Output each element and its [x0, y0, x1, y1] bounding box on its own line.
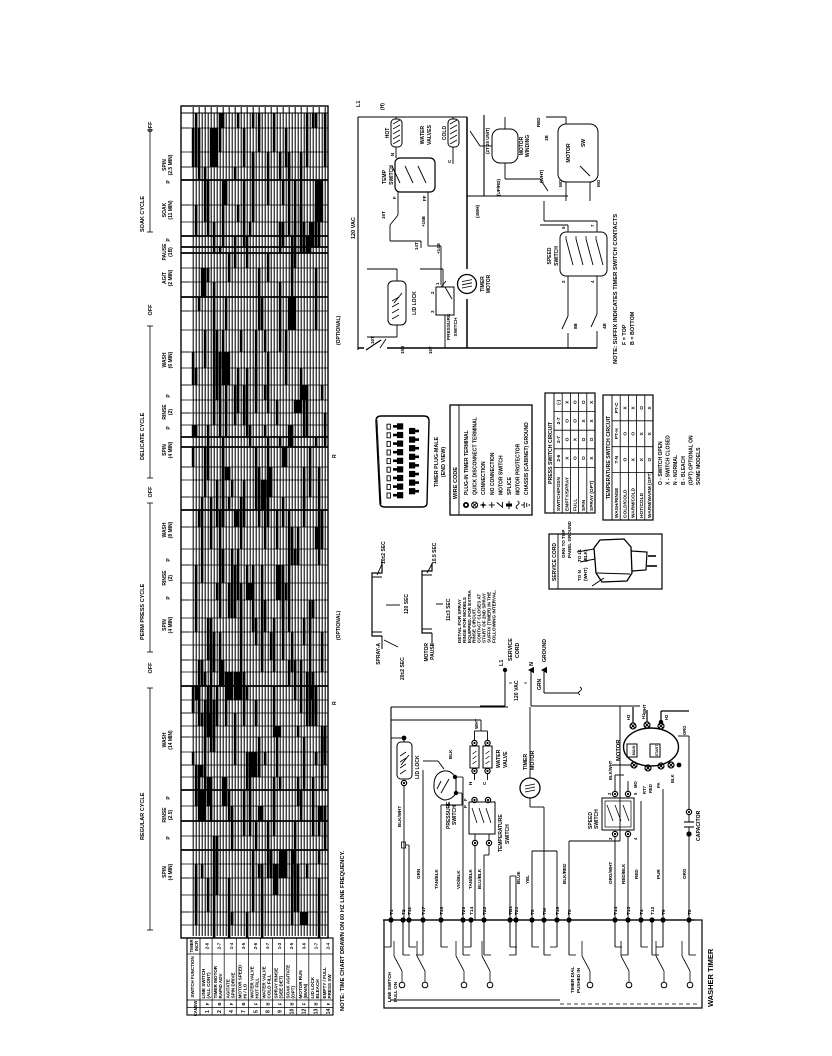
- svg-text:TO N: TO N: [577, 569, 582, 581]
- svg-text:CONNECTION: CONNECTION: [481, 461, 487, 495]
- svg-text:SOAK CYCLE: SOAK CYCLE: [140, 196, 146, 232]
- svg-text:FF: FF: [422, 195, 427, 201]
- svg-text:T9: T9: [661, 909, 667, 915]
- svg-text:NO CONNECTION: NO CONNECTION: [490, 452, 496, 495]
- svg-text:(UP/RD): (UP/RD): [496, 179, 501, 196]
- svg-text:B - BLEACH: B - BLEACH: [681, 456, 687, 485]
- svg-text:PLUG-IN TIMER TERMINAL: PLUG-IN TIMER TERMINAL: [464, 430, 470, 495]
- svg-text:VALVES: VALVES: [427, 124, 433, 145]
- svg-text:BLK/WHT: BLK/WHT: [608, 760, 613, 780]
- svg-text:YEL: YEL: [525, 875, 530, 884]
- svg-text:120 VAC: 120 VAC: [351, 217, 357, 239]
- svg-text:8: 8: [265, 1010, 271, 1013]
- svg-text:MOTOR SWITCH: MOTOR SWITCH: [498, 455, 504, 495]
- svg-text:BLU/BLK: BLU/BLK: [477, 868, 482, 889]
- svg-text:T12: T12: [650, 906, 656, 915]
- svg-text:B = BOTTOM: B = BOTTOM: [630, 311, 636, 345]
- svg-text:1B: 1B: [544, 134, 549, 141]
- svg-text:9: 9: [277, 1010, 283, 1013]
- svg-text:SOME MODELS: SOME MODELS: [696, 447, 702, 485]
- svg-text:GROUND: GROUND: [542, 639, 548, 662]
- svg-text:RED: RED: [536, 117, 541, 127]
- svg-text:MAIN: MAIN: [632, 745, 636, 755]
- svg-text:COLD/COLD: COLD/COLD: [622, 489, 628, 518]
- svg-text:RT7: RT7: [642, 785, 647, 794]
- svg-text:(2.5 MIN): (2.5 MIN): [168, 154, 174, 175]
- svg-text:120 SEC: 120 SEC: [404, 594, 410, 614]
- svg-text:MOTOR: MOTOR: [530, 751, 536, 770]
- svg-text:N - NORMAL: N - NORMAL: [673, 455, 679, 485]
- svg-text:NOTE: SUFFIX INDICATES TIMER S: NOTE: SUFFIX INDICATES TIMER SWITCH CONT…: [613, 214, 619, 364]
- svg-text:INCR: INCR: [194, 941, 199, 951]
- svg-text:SW: SW: [193, 1001, 198, 1008]
- svg-text:SPIN DRIVE: SPIN DRIVE: [230, 972, 235, 998]
- svg-text:WARM/WARM (OPT): WARM/WARM (OPT): [647, 472, 653, 518]
- svg-text:F: F: [277, 1002, 282, 1005]
- svg-text:T18: T18: [555, 906, 561, 915]
- svg-text:1: 1: [205, 1010, 211, 1013]
- svg-text:PA: PA: [656, 782, 661, 788]
- svg-text:2-6: 2-6: [556, 454, 562, 461]
- svg-text:4-7: 4-7: [265, 942, 270, 949]
- svg-text:7: 7: [241, 1010, 247, 1013]
- svg-text:COLD FILL: COLD FILL: [267, 974, 272, 998]
- svg-text:O: O: [564, 419, 570, 423]
- svg-text:ORG: ORG: [682, 868, 687, 879]
- svg-text:HOT/COLD: HOT/COLD: [639, 492, 645, 518]
- svg-text:O: O: [564, 437, 570, 441]
- svg-text:X - SWITCH CLOSED: X - SWITCH CLOSED: [666, 435, 672, 485]
- svg-text:(OPT): (OPT): [291, 986, 296, 999]
- svg-text:T4: T4: [639, 909, 645, 915]
- svg-text:12: 12: [302, 1009, 308, 1015]
- svg-text:(2.5): (2.5): [168, 810, 174, 821]
- svg-text:T17: T17: [421, 906, 427, 915]
- svg-text:14T: 14T: [414, 242, 419, 250]
- svg-text:F: F: [253, 1002, 258, 1005]
- svg-text:OFF: OFF: [148, 121, 154, 133]
- svg-text:2-6: 2-6: [205, 942, 210, 949]
- svg-text:B: B: [265, 1002, 270, 1005]
- svg-text:SPEED: SPEED: [547, 247, 553, 264]
- svg-text:BLK/RED: BLK/RED: [562, 863, 567, 884]
- svg-text:TIMER: TIMER: [523, 754, 529, 770]
- svg-text:(-): (-): [556, 400, 562, 405]
- svg-text:PRESS SWITCH CIRCUIT: PRESS SWITCH CIRCUIT: [548, 421, 554, 484]
- svg-text:PERM PRESS CYCLE: PERM PRESS CYCLE: [140, 583, 146, 640]
- svg-text:RED: RED: [648, 784, 653, 793]
- svg-text:PAUSE: PAUSE: [430, 642, 436, 660]
- svg-text:TIMER DIAL: TIMER DIAL: [570, 967, 575, 993]
- svg-text:SPLICE: SPLICE: [507, 476, 513, 495]
- svg-text:(4 MIN): (4 MIN): [168, 863, 174, 880]
- svg-text:15B: 15B: [400, 345, 405, 354]
- svg-text:(4 MIN): (4 MIN): [168, 616, 174, 633]
- svg-text:H3: H3: [626, 714, 631, 720]
- svg-text:SWITCH: SWITCH: [389, 165, 395, 185]
- svg-text:WASH/RINSE: WASH/RINSE: [614, 487, 620, 518]
- svg-text:16T: 16T: [370, 336, 375, 344]
- svg-text:RAPID ADV: RAPID ADV: [218, 972, 223, 998]
- svg-text:N: N: [529, 662, 535, 666]
- svg-text:10: 10: [290, 1009, 296, 1015]
- svg-text:F: F: [463, 798, 468, 801]
- svg-text:ORG: ORG: [682, 725, 687, 735]
- svg-text:EMPTY/SPRAY: EMPTY/SPRAY: [564, 476, 570, 511]
- svg-text:B: B: [217, 1002, 222, 1005]
- svg-text:O: O: [573, 456, 579, 460]
- svg-text:2-7: 2-7: [556, 417, 562, 424]
- svg-text:PANEL GROUND: PANEL GROUND: [567, 520, 572, 558]
- svg-text:O: O: [647, 457, 653, 461]
- svg-text:CORD: CORD: [515, 642, 521, 658]
- svg-text:O: O: [573, 400, 579, 404]
- svg-text:SERVICE CORD: SERVICE CORD: [552, 543, 558, 581]
- svg-text:LID LOCK: LID LOCK: [412, 291, 418, 315]
- svg-text:13: 13: [314, 1009, 320, 1015]
- svg-text:SPIN: SPIN: [581, 499, 587, 511]
- svg-text:(2 MIN): (2 MIN): [168, 269, 174, 286]
- svg-text:2-6: 2-6: [253, 942, 258, 949]
- svg-text:SPRAY (OPT): SPRAY (OPT): [589, 480, 595, 511]
- svg-text:(2): (2): [168, 409, 174, 415]
- svg-text:O - SWITCH OPEN: O - SWITCH OPEN: [658, 441, 664, 485]
- svg-text:T-N: T-N: [614, 455, 620, 463]
- svg-text:(14 MIN): (14 MIN): [168, 730, 174, 750]
- svg-text:WATER: WATER: [420, 126, 426, 145]
- svg-text:T8: T8: [687, 909, 693, 915]
- svg-text:R: R: [332, 701, 338, 705]
- svg-text:(OPTIONAL): (OPTIONAL): [336, 316, 342, 345]
- svg-text:+14B: +14B: [436, 242, 441, 254]
- svg-text:O: O: [631, 432, 637, 436]
- svg-text:R: R: [332, 454, 338, 458]
- svg-text:1-4: 1-4: [229, 942, 234, 949]
- svg-text:T21: T21: [514, 906, 520, 915]
- svg-text:T22: T22: [482, 906, 488, 915]
- svg-text:BLUE: BLUE: [516, 871, 521, 884]
- svg-text:SWITCH: SWITCH: [453, 317, 459, 336]
- svg-text:SWITCH: SWITCH: [505, 824, 511, 844]
- svg-text:T20: T20: [461, 906, 467, 915]
- svg-text:SWITCH: SWITCH: [554, 246, 560, 266]
- svg-text:BLK: BLK: [448, 749, 453, 759]
- svg-text:HOT: HOT: [385, 128, 391, 139]
- svg-text:H: H: [468, 782, 473, 785]
- svg-text:RED/BLK: RED/BLK: [621, 863, 626, 884]
- svg-text:COLD: COLD: [442, 126, 448, 141]
- svg-text:120 VAC: 120 VAC: [514, 680, 520, 701]
- svg-text:8B: 8B: [573, 322, 578, 329]
- svg-text:MOTOR: MOTOR: [616, 739, 622, 761]
- svg-text:FOLLOWING INTERVAL.: FOLLOWING INTERVAL.: [491, 590, 496, 643]
- svg-text:WHT: WHT: [642, 704, 647, 714]
- svg-text:20±2 SEC: 20±2 SEC: [400, 657, 406, 680]
- svg-text:SERVICE: SERVICE: [508, 638, 514, 661]
- svg-text:16T: 16T: [381, 211, 386, 219]
- svg-text:(6 MIN): (6 MIN): [168, 351, 174, 368]
- svg-text:WHT: WHT: [474, 718, 479, 729]
- svg-text:MOTOR: MOTOR: [486, 274, 492, 293]
- svg-text:WASHER TIMER: WASHER TIMER: [706, 948, 715, 1007]
- svg-text:2-7: 2-7: [217, 942, 222, 949]
- svg-text:O: O: [581, 400, 587, 404]
- svg-text:T5: T5: [530, 909, 536, 915]
- svg-text:11±3 SEC: 11±3 SEC: [446, 598, 452, 621]
- svg-text:F: F: [229, 1002, 234, 1005]
- svg-text:3-6: 3-6: [301, 942, 306, 949]
- svg-text:F = TOP: F = TOP: [622, 324, 628, 345]
- svg-text:(OPTIONAL): (OPTIONAL): [336, 611, 342, 640]
- svg-text:MO: MO: [558, 179, 563, 187]
- svg-text:F: F: [302, 1002, 307, 1005]
- svg-text:PRESSURE: PRESSURE: [446, 313, 452, 340]
- svg-text:CAPACITOR: CAPACITOR: [696, 810, 702, 841]
- svg-text:10.5 SEC: 10.5 SEC: [432, 542, 438, 564]
- svg-text:T11: T11: [407, 907, 413, 915]
- svg-text:CHASSIS (CABINET) GROUND: CHASSIS (CABINET) GROUND: [524, 422, 530, 495]
- svg-text:(4 MIN): (4 MIN): [168, 441, 174, 458]
- svg-text:TEMP: TEMP: [382, 169, 388, 184]
- svg-text:GRN: GRN: [416, 868, 421, 879]
- svg-text:B: B: [290, 1002, 295, 1005]
- svg-text:HOT FILL: HOT FILL: [254, 978, 259, 999]
- svg-text:GRN: GRN: [537, 679, 543, 691]
- svg-text:T1: T1: [389, 909, 395, 915]
- svg-text:MO: MO: [633, 781, 638, 788]
- svg-text:B: B: [314, 1002, 319, 1005]
- svg-text:PT-H: PT-H: [614, 428, 620, 439]
- svg-text:DELICATE CYCLE: DELICATE CYCLE: [140, 412, 146, 460]
- svg-text:MOTOR: MOTOR: [566, 143, 572, 162]
- svg-text:(8 MIN): (8 MIN): [168, 521, 174, 538]
- svg-text:(4WH): (4WH): [475, 205, 480, 218]
- svg-text:(2T 25 UNIT): (2T 25 UNIT): [485, 127, 490, 154]
- svg-text:WINDING: WINDING: [525, 135, 531, 157]
- svg-text:O: O: [573, 419, 579, 423]
- svg-text:O: O: [581, 456, 587, 460]
- svg-text:T6: T6: [567, 909, 573, 915]
- svg-text:(1B): (1B): [168, 247, 174, 257]
- svg-text:L1: L1: [356, 101, 362, 107]
- svg-text:1-3: 1-3: [277, 942, 282, 949]
- svg-text:T13: T13: [626, 906, 632, 915]
- svg-text:2-7: 2-7: [556, 436, 562, 443]
- svg-text:SW: SW: [581, 139, 587, 147]
- svg-text:PUSHED IN: PUSHED IN: [576, 967, 581, 993]
- svg-text:(ALL CONT): (ALL CONT): [206, 972, 211, 999]
- svg-text:WARM/COLD: WARM/COLD: [631, 487, 637, 518]
- svg-text:MOTOR PROTECTOR: MOTOR PROTECTOR: [516, 443, 522, 495]
- svg-text:F: F: [205, 1002, 210, 1005]
- svg-text:TIMER PLUG-MALE: TIMER PLUG-MALE: [434, 436, 440, 487]
- svg-text:T16: T16: [439, 906, 445, 915]
- svg-text:OFF: OFF: [148, 304, 154, 316]
- svg-text:(OPT) OPTIONAL ON: (OPT) OPTIONAL ON: [688, 435, 694, 485]
- svg-text:RED: RED: [634, 869, 639, 879]
- svg-text:VALVE: VALVE: [503, 751, 509, 768]
- svg-text:BLEACH: BLEACH: [315, 979, 320, 999]
- svg-text:TEMPERATURE SWITCH CIRCUIT: TEMPERATURE SWITCH CIRCUIT: [606, 415, 612, 499]
- svg-text:REGULAR CYCLE: REGULAR CYCLE: [140, 792, 146, 840]
- svg-text:SWITCH: SWITCH: [452, 805, 458, 825]
- svg-text:4: 4: [229, 1010, 235, 1013]
- svg-text:WATER: WATER: [496, 749, 502, 768]
- svg-text:P: P: [463, 805, 468, 808]
- svg-text:MO: MO: [596, 179, 601, 187]
- svg-text:GRN TO TOP: GRN TO TOP: [561, 530, 566, 558]
- svg-text:2-4: 2-4: [326, 942, 331, 949]
- svg-text:F: F: [326, 1002, 331, 1005]
- svg-text:10±2 SEC: 10±2 SEC: [381, 541, 387, 564]
- svg-text:LID LOCK: LID LOCK: [415, 755, 421, 779]
- svg-text:VIO/BLK: VIO/BLK: [456, 870, 461, 889]
- svg-text:O: O: [622, 432, 628, 436]
- svg-text:2-5: 2-5: [289, 942, 294, 949]
- svg-text:14: 14: [326, 1009, 332, 1015]
- svg-text:O: O: [589, 437, 595, 441]
- svg-text:(WHT): (WHT): [539, 169, 544, 183]
- svg-text:+15B: +15B: [421, 215, 426, 227]
- svg-text:START: START: [655, 744, 659, 757]
- svg-text:N: N: [390, 153, 395, 156]
- svg-text:WIRE CODE: WIRE CODE: [453, 467, 459, 500]
- svg-text:T14: T14: [469, 906, 475, 915]
- svg-text:5: 5: [253, 1010, 259, 1013]
- svg-text:BLK/WHT: BLK/WHT: [397, 806, 402, 827]
- svg-text:TAN/BLK: TAN/BLK: [468, 869, 473, 889]
- svg-text:(MAIN): (MAIN): [303, 983, 308, 998]
- svg-text:SWITCH FUNCTION: SWITCH FUNCTION: [190, 956, 195, 997]
- svg-text:F: F: [392, 196, 397, 199]
- svg-text:PUR: PUR: [656, 869, 661, 879]
- svg-text:T14: T14: [613, 906, 619, 915]
- svg-text:O: O: [622, 457, 628, 461]
- svg-text:4B: 4B: [602, 322, 607, 329]
- svg-text:L1: L1: [499, 660, 505, 666]
- svg-text:(H): (H): [380, 103, 386, 110]
- svg-text:1-7: 1-7: [313, 942, 318, 949]
- svg-text:OFF: OFF: [148, 486, 154, 498]
- svg-text:2: 2: [217, 1010, 223, 1013]
- svg-text:OFF: OFF: [148, 662, 154, 674]
- svg-text:(SEE DET): (SEE DET): [279, 975, 284, 998]
- svg-text:PULL ON: PULL ON: [393, 981, 398, 1002]
- svg-text:10T: 10T: [428, 346, 433, 354]
- svg-text:SWITCH: SWITCH: [594, 809, 600, 829]
- svg-text:(11 MIN): (11 MIN): [168, 200, 174, 220]
- svg-text:SWITCH/POSN: SWITCH/POSN: [556, 477, 562, 511]
- svg-text:TO L1: TO L1: [577, 549, 582, 562]
- svg-text:(2): (2): [168, 575, 174, 581]
- svg-text:(WHT): (WHT): [583, 567, 588, 581]
- svg-text:QUICK DISCONNECT TERMINAL: QUICK DISCONNECT TERMINAL: [473, 417, 479, 495]
- svg-text:BLK: BLK: [670, 774, 675, 783]
- svg-text:3-5: 3-5: [241, 942, 246, 949]
- svg-text:O: O: [639, 406, 645, 410]
- svg-text:TAN/BLK: TAN/BLK: [434, 869, 439, 889]
- svg-text:LINE SWITCH: LINE SWITCH: [387, 971, 392, 1002]
- svg-text:H2: H2: [664, 714, 669, 720]
- svg-text:(END VIEW): (END VIEW): [441, 447, 447, 477]
- svg-text:TB1: TB1: [508, 906, 514, 915]
- svg-text:ORG/WHT: ORG/WHT: [608, 862, 613, 884]
- svg-text:TEMPERATURE: TEMPERATURE: [498, 814, 504, 852]
- svg-text:B: B: [241, 1002, 246, 1005]
- svg-text:NOTE: TIME CHART DRAWN ON 60: NOTE: TIME CHART DRAWN ON 60 HZ LINE FRE…: [340, 850, 346, 1011]
- svg-text:TM: TM: [542, 908, 548, 915]
- svg-text:O: O: [581, 437, 587, 441]
- svg-text:HI / LO: HI / LO: [242, 983, 247, 998]
- svg-text:FULL: FULL: [573, 499, 579, 511]
- svg-text:PRESS SW: PRESS SW: [327, 974, 332, 999]
- svg-text:SPRAY-A: SPRAY-A: [376, 643, 382, 665]
- svg-text:PT-C: PT-C: [614, 402, 620, 413]
